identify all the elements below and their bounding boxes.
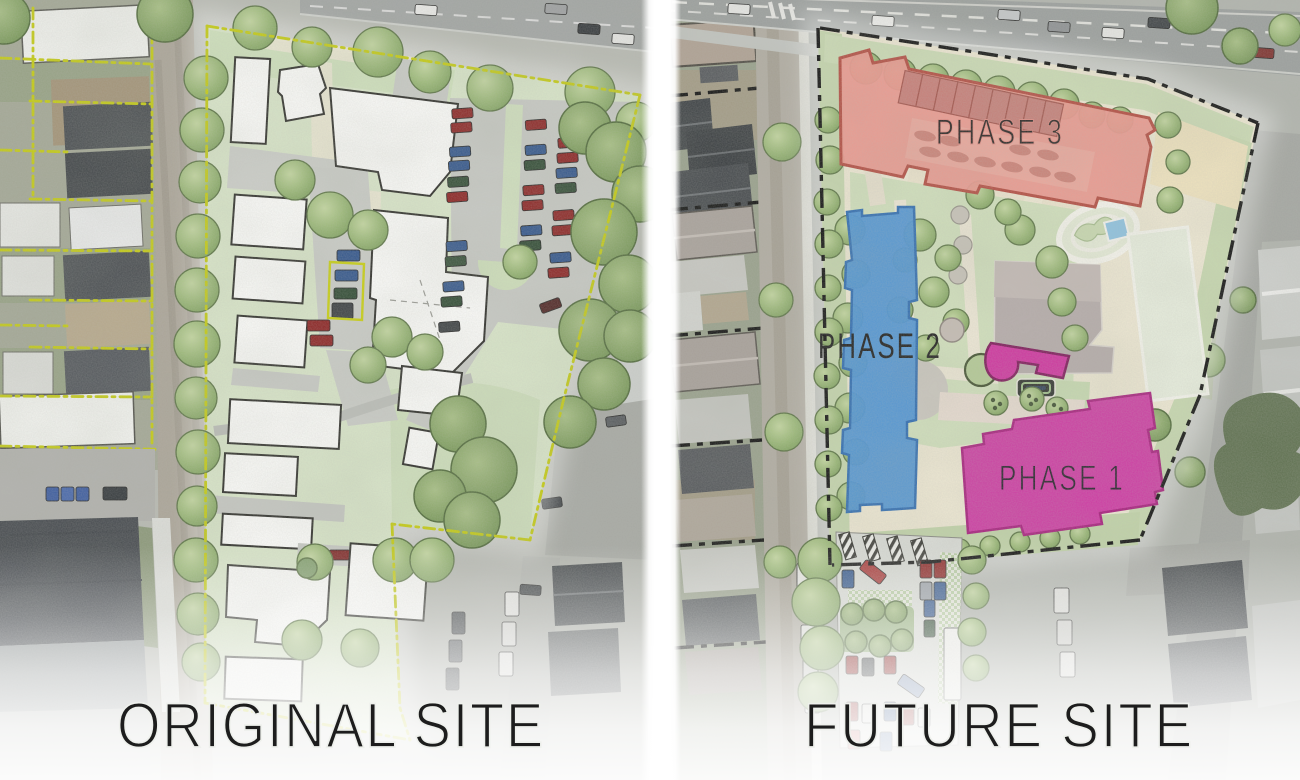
svg-text:ORIGINAL SITE: ORIGINAL SITE (117, 691, 545, 761)
svg-text:FUTURE SITE: FUTURE SITE (804, 691, 1194, 761)
